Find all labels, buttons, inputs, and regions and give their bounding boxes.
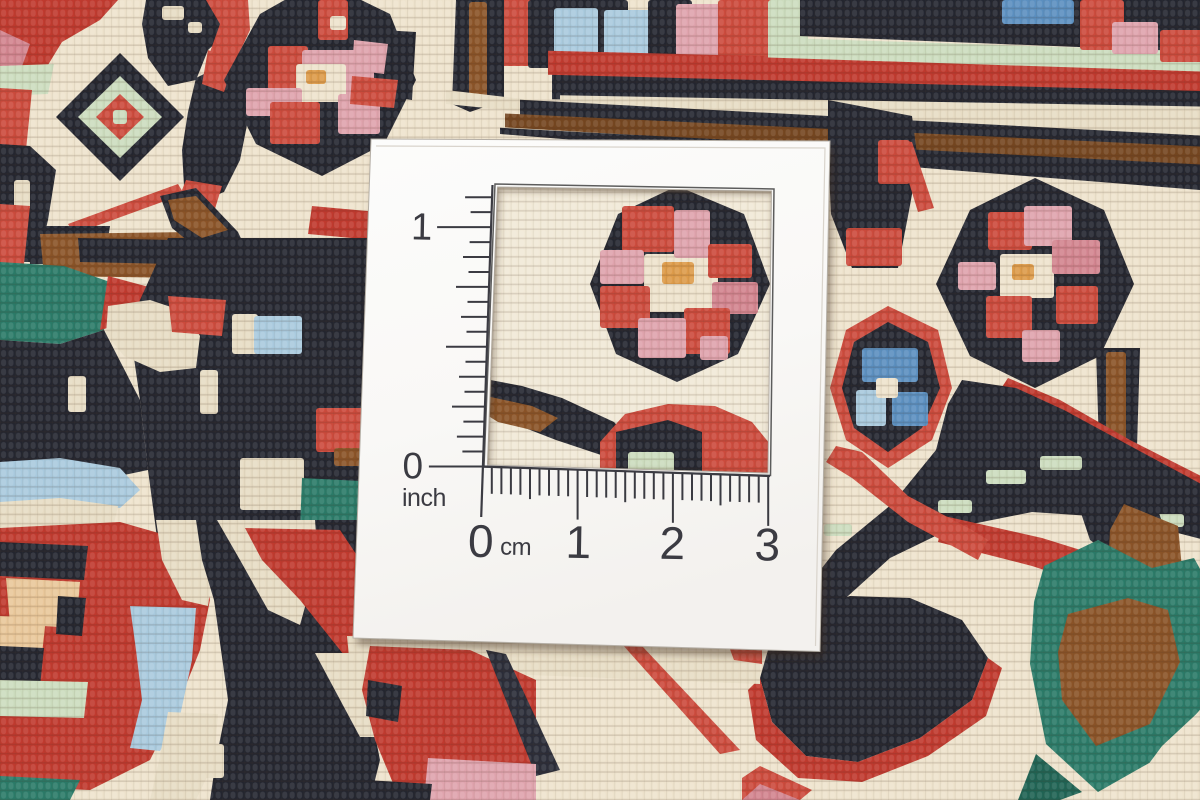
svg-text:2: 2	[659, 517, 685, 569]
svg-text:cm: cm	[500, 534, 531, 562]
svg-text:1: 1	[411, 206, 433, 248]
svg-text:0: 0	[403, 446, 424, 487]
svg-text:inch: inch	[402, 484, 446, 512]
svg-text:0: 0	[468, 515, 494, 567]
svg-text:1: 1	[565, 516, 591, 568]
svg-text:3: 3	[754, 518, 780, 570]
